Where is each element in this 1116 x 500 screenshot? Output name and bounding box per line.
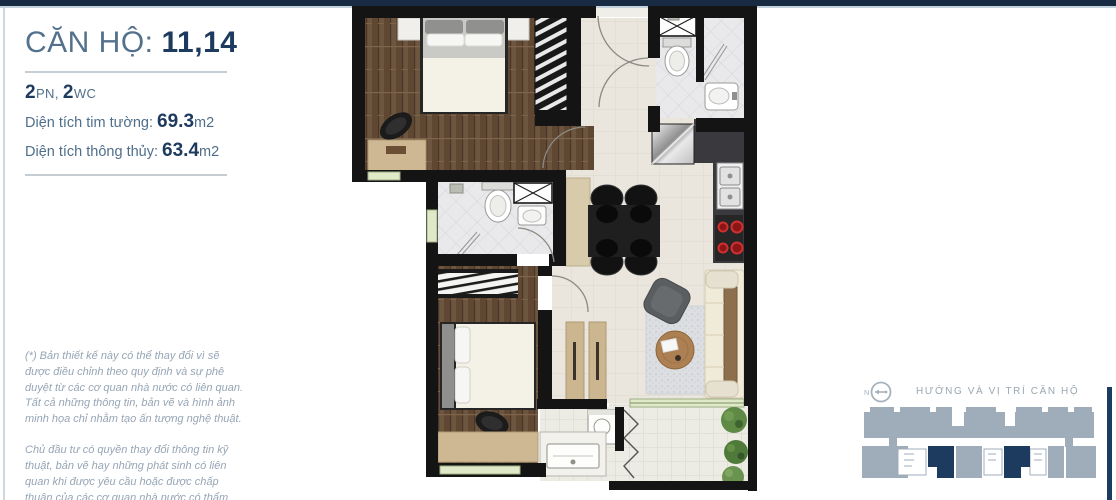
compass-north-label: N [864,388,869,397]
coffee-table [656,331,694,369]
wardrobe [535,14,567,113]
building-unit-block [1066,446,1096,478]
shower-head [450,184,463,193]
stove [715,215,743,261]
building-connector [1065,438,1073,447]
wardrobe [438,269,518,298]
floor-plan-canvas: N [0,0,1116,500]
sofa [705,270,744,398]
building-notch [952,412,964,426]
desk [438,432,538,462]
nightstand [505,18,529,40]
double-bed [440,322,536,410]
compass-icon: N [864,383,891,402]
floor-plan [352,6,757,491]
building-unit-block [1048,446,1064,478]
apartment-detail-page: CĂN HỘ:11,14 2PN, 2WC Diện tích tim tườn… [0,0,1116,500]
entry-threshold [596,8,650,17]
shoe-cabinet [566,178,590,266]
nightstand [398,18,422,40]
bedroom1-doorway-floor [526,126,594,170]
desk-item [386,146,406,154]
building-top-wing [864,412,1094,438]
toilet-tank [482,182,515,190]
kitchen-sink [717,163,743,209]
desk [368,140,426,172]
double-bed [420,16,508,114]
building-notch [1005,412,1015,426]
building-connector [889,438,897,447]
ac-ledge [540,432,606,476]
building-footprint [862,407,1096,478]
building-unit-block [956,446,982,478]
